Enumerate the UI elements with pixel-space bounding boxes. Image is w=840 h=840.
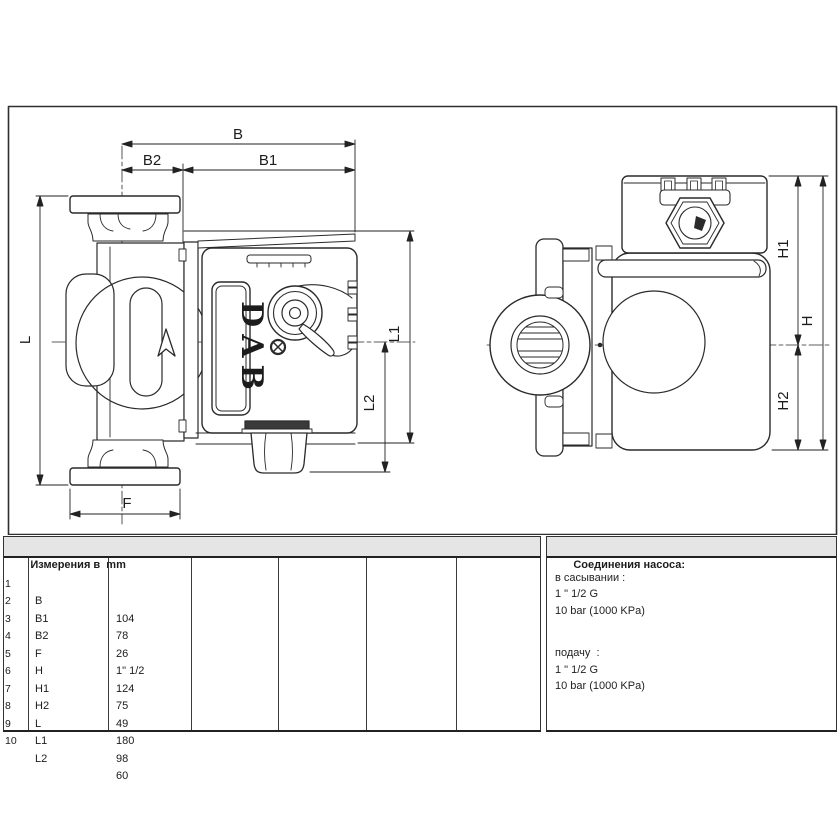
table-row: 3 B2 26: [4, 593, 540, 611]
dim-value: 180: [116, 733, 134, 751]
dimensions-table: Измерения в mm 1 B 104 2 B1 78 3 B2 26 4…: [3, 536, 541, 732]
table-row: 1 B 104: [4, 558, 540, 576]
terminal-box-side: [622, 176, 767, 253]
delivery-pressure: 10 bar (1000 KPa): [555, 678, 828, 694]
dim-label-f: F: [122, 495, 131, 512]
dim-label-h1: H1: [775, 239, 792, 258]
dim-name: L2: [35, 751, 47, 769]
motor-bulge-circle: [603, 291, 705, 393]
connections-body: в сасывании : 1 " 1/2 G 10 bar (1000 KPa…: [547, 558, 836, 730]
dim-label-l2: L2: [361, 395, 378, 412]
dim-value: 60: [116, 768, 128, 786]
dimensions-table-header: Измерения в mm: [4, 537, 540, 558]
row-num: 10: [5, 733, 26, 751]
table-row: 2 B1 78: [4, 576, 540, 594]
interface-plate: [184, 242, 198, 438]
technical-drawing: DAB: [0, 0, 840, 535]
dim-label-h2: H2: [775, 391, 792, 410]
dim-name: L1: [35, 733, 47, 751]
table-row: 7 H2 49: [4, 663, 540, 681]
suction-size: 1 " 1/2 G: [555, 586, 828, 602]
side-dimensions: H1 H H2: [769, 176, 828, 450]
delivery-label: подачу :: [555, 645, 828, 661]
table-row: 4 F 1" 1/2: [4, 611, 540, 629]
housing-capsule: [130, 288, 162, 396]
suction-label: в сасывании :: [555, 570, 828, 586]
connections-panel-header: Соединения насоса:: [547, 537, 836, 558]
dim-label-h: H: [799, 316, 816, 327]
pump-port-circle: [490, 295, 590, 395]
dim-label-l1: L1: [386, 326, 403, 343]
motor-rib: [598, 260, 766, 277]
cable-gland-front: [242, 421, 312, 473]
top-flange: [70, 196, 180, 213]
dab-logo-text: DAB: [234, 301, 269, 397]
table-row: 6 H1 75: [4, 646, 540, 664]
delivery-size: 1 " 1/2 G: [555, 662, 828, 678]
datasheet-page: DAB: [0, 0, 840, 840]
table-row: 10 L2 60: [4, 716, 540, 734]
dab-logo: DAB: [212, 282, 269, 415]
pump-front-view: DAB: [52, 146, 415, 524]
dim-label-l: L: [17, 336, 34, 344]
dim-value: 98: [116, 751, 128, 769]
connections-panel: Соединения насоса: в сасывании : 1 " 1/2…: [546, 536, 837, 732]
dim-label-b1: B1: [259, 152, 277, 169]
table-row: 9 L1 98: [4, 698, 540, 716]
dim-label-b: B: [233, 126, 243, 143]
pump-side-view: [487, 176, 831, 456]
table-row: 5 H 124: [4, 628, 540, 646]
suction-pressure: 10 bar (1000 KPa): [555, 603, 828, 619]
volute-cap: [66, 274, 114, 386]
motor-box-front: DAB: [196, 234, 357, 473]
table-row: 8 L 180: [4, 681, 540, 699]
dim-label-b2: B2: [143, 152, 161, 169]
bottom-flange: [70, 468, 180, 485]
